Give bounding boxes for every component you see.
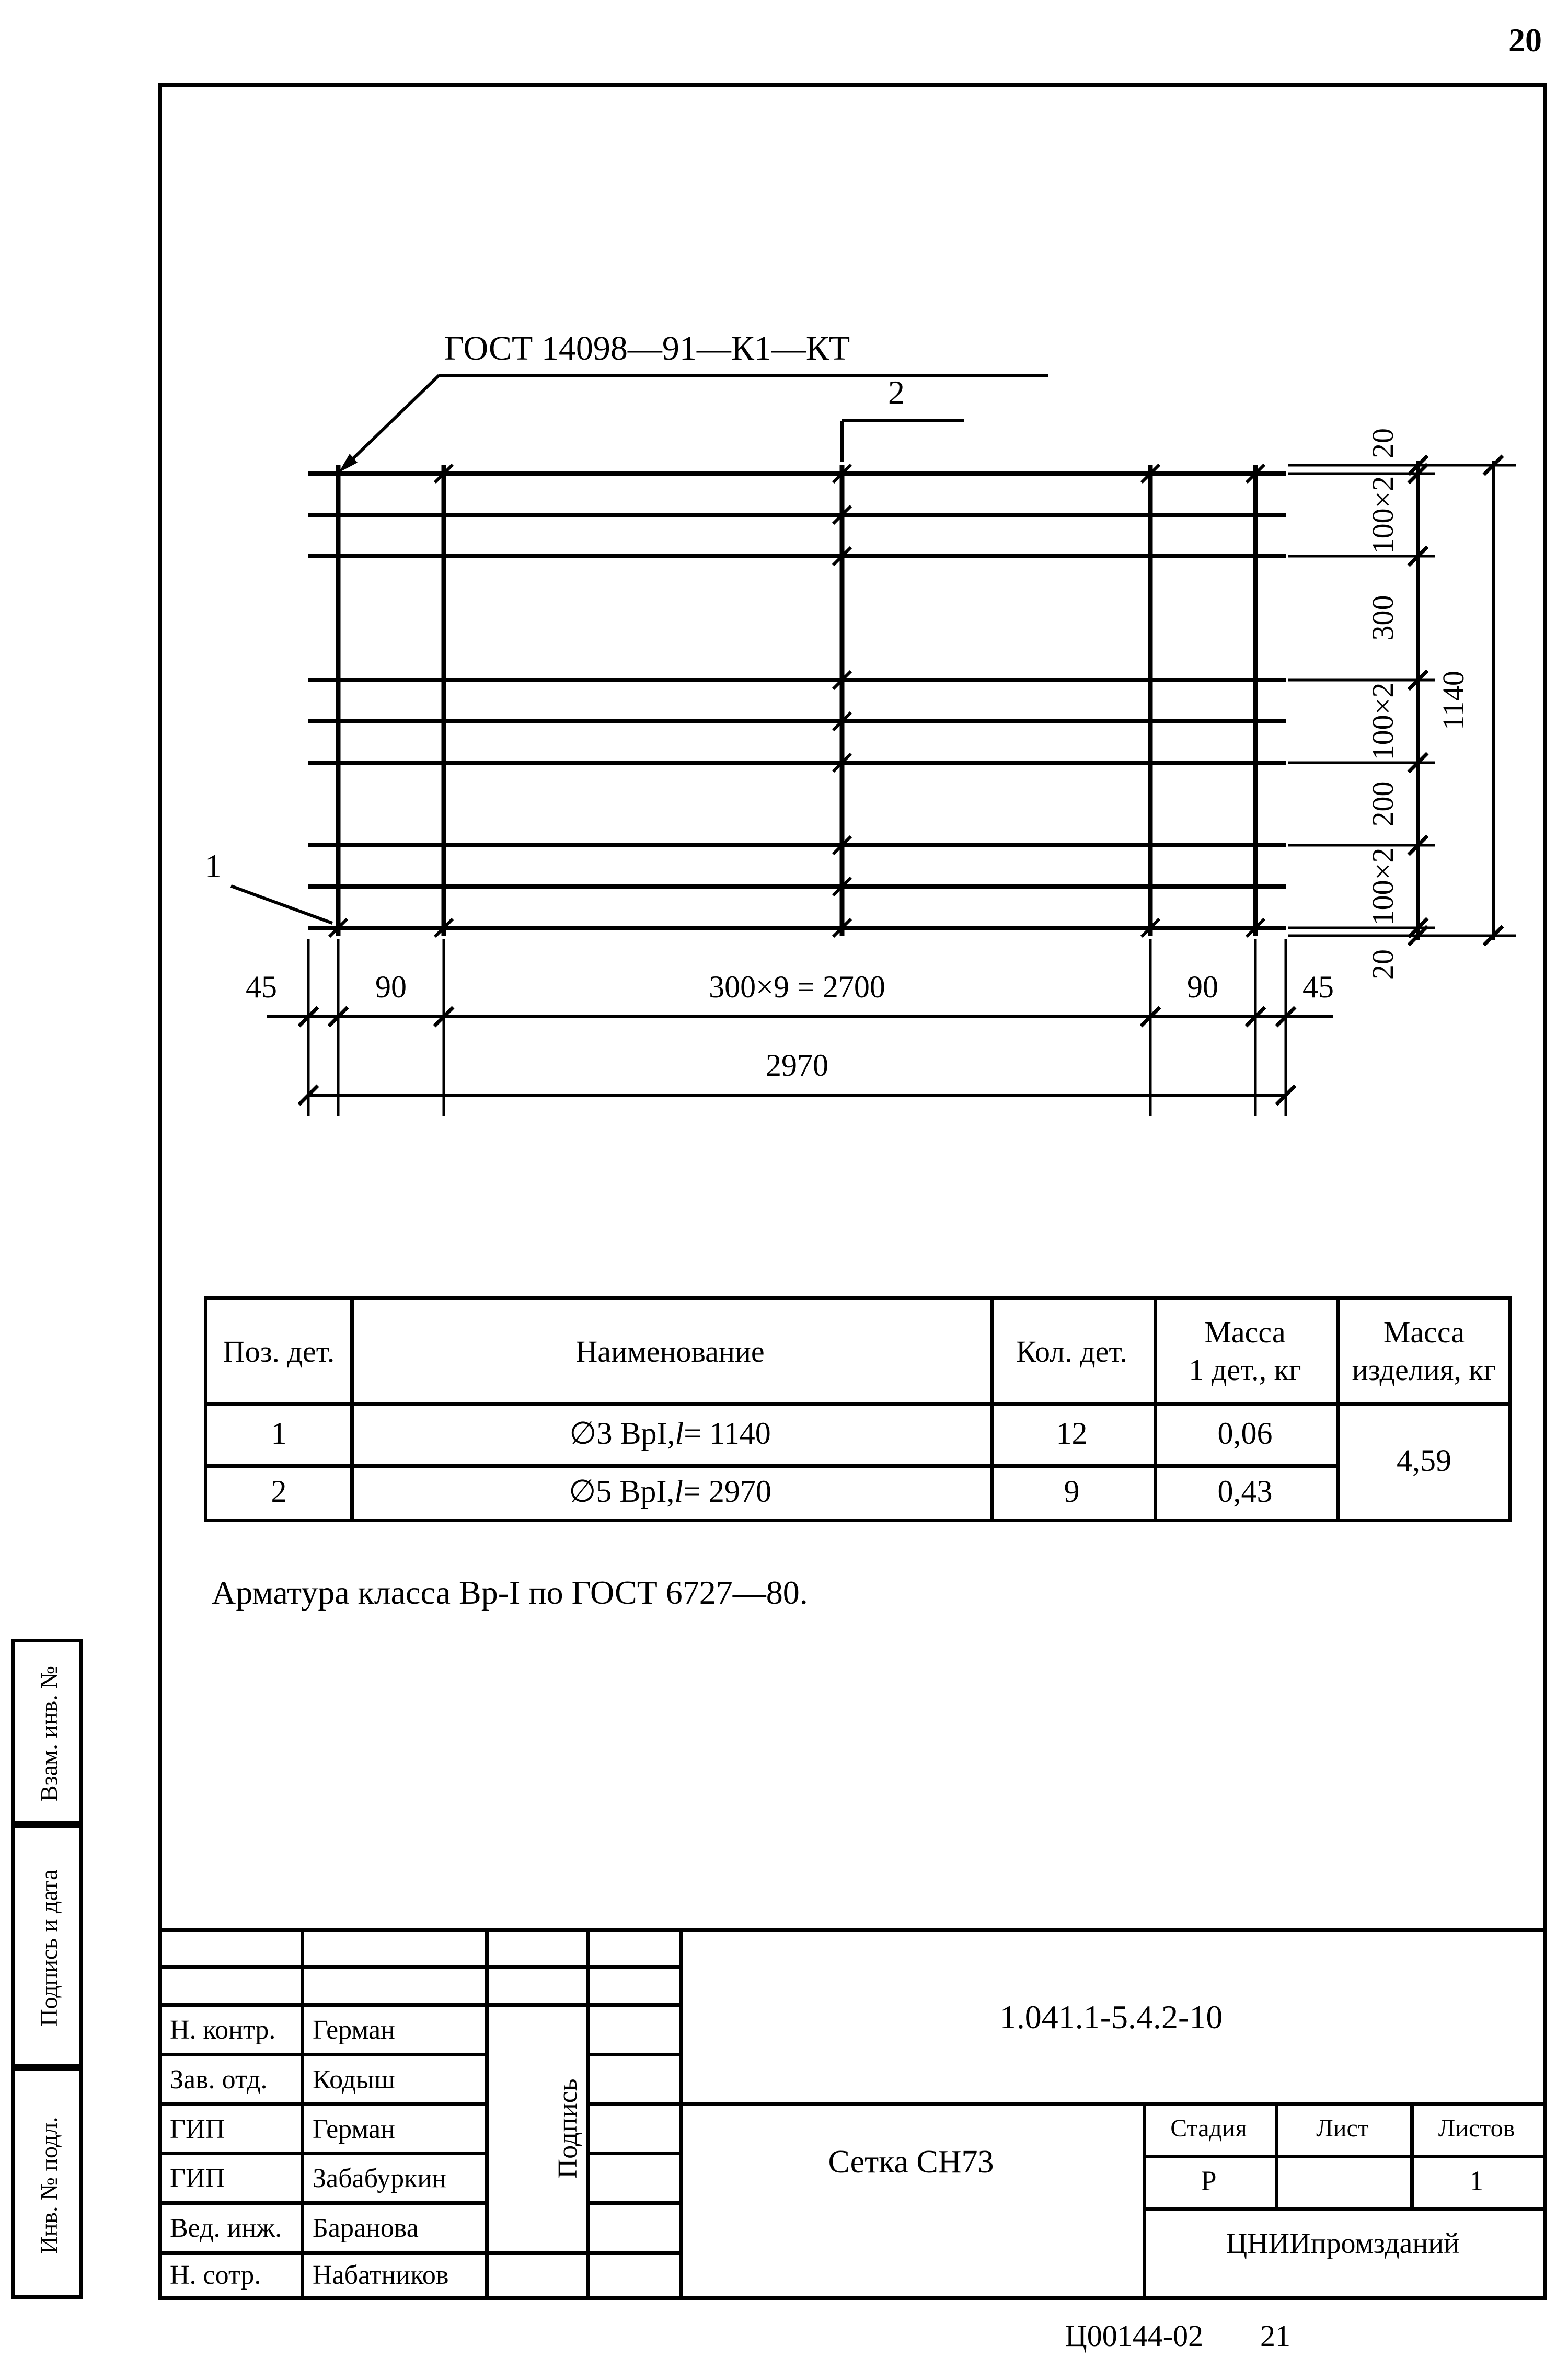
footer-page-number: 21	[1244, 2318, 1307, 2353]
dim-right-100x2-a: 100×2	[1366, 476, 1400, 554]
weld-tick-marks	[329, 465, 1264, 937]
table-row1-name: ∅3 ВрI, l = 1140	[350, 1402, 990, 1464]
stamp-sheets-header: Листов	[1410, 2102, 1543, 2155]
dim-bottom-300x9: 300×9 = 2700	[709, 970, 885, 1004]
stamp-role: ГИП	[170, 2155, 298, 2201]
dim-total-width: 2970	[766, 1048, 828, 1083]
sidebar-label-vzam: Взам. инв. №	[15, 1641, 83, 1826]
row1-name-value: = 1140	[684, 1416, 771, 1452]
stamp-sheet-header: Лист	[1275, 2102, 1410, 2155]
page-number: 20	[1458, 21, 1542, 60]
right-dimension-lines	[1288, 461, 1516, 940]
table-row1-qty: 12	[990, 1402, 1154, 1464]
dim-right-20-bottom: 20	[1366, 949, 1400, 980]
row2-name-value: = 2970	[683, 1474, 771, 1510]
sidebar-cell-podpis-data: Подпись и дата	[11, 1824, 83, 2067]
table-row2-qty: 9	[990, 1464, 1154, 1519]
sidebar-cell-vzam: Взам. инв. №	[11, 1639, 83, 1824]
footer-doc-code: Ц00144-02	[1045, 2318, 1223, 2353]
stamp-hline	[162, 1965, 679, 1969]
stamp-hline	[162, 2102, 485, 2106]
position-1-leader	[231, 886, 332, 923]
table-row2-mass: 0,43	[1154, 1464, 1336, 1519]
reinforcement-note: Арматура класса Вр-I по ГОСТ 6727—80.	[212, 1573, 1100, 1612]
row2-name-var: l	[674, 1474, 683, 1510]
table-header-qty: Кол. дет.	[990, 1300, 1154, 1402]
dim-bottom-45-right: 45	[1302, 970, 1334, 1004]
table-header-mass-unit: Масса 1 дет., кг	[1154, 1300, 1336, 1402]
spec-table: Поз. дет. Наименование Кол. дет. Масса 1…	[204, 1296, 1512, 1522]
bottom-dimension-lines	[267, 939, 1333, 1116]
stamp-role: Зав. отд.	[170, 2056, 298, 2102]
title-block: Н. контр. Герман Зав. отд. Кодыш ГИП Гер…	[158, 1928, 1547, 2300]
stamp-hline	[162, 2053, 485, 2056]
stamp-hline	[162, 2251, 679, 2255]
dim-bottom-45-left: 45	[246, 970, 277, 1004]
table-header-pos: Поз. дет.	[207, 1300, 350, 1402]
stamp-stage-value: Р	[1143, 2155, 1275, 2207]
table-header-mass-total: Масса изделия, кг	[1336, 1300, 1512, 1402]
drawing-sheet: 20 ГОСТ 14098—91—К1—КТ 2 1	[0, 0, 1568, 2358]
row2-name-prefix: ∅5 ВрI,	[569, 1473, 674, 1510]
stamp-name: Герман	[313, 2007, 482, 2053]
row1-name-var: l	[675, 1416, 684, 1452]
mesh-vertical-wires	[338, 465, 1255, 936]
stamp-role: Н. сотр.	[170, 2255, 298, 2296]
stamp-vline	[301, 1932, 304, 2296]
stamp-vline	[485, 1932, 489, 2296]
stamp-product-title: Сетка СН73	[679, 2102, 1143, 2222]
weld-standard-label: ГОСТ 14098—91—К1—КТ	[444, 329, 850, 367]
dim-right-100x2-c: 100×2	[1366, 848, 1400, 926]
stamp-role: Н. контр.	[170, 2007, 298, 2053]
table-total-mass: 4,59	[1336, 1402, 1512, 1519]
dim-bottom-90-right: 90	[1187, 970, 1218, 1004]
mesh-drawing: ГОСТ 14098—91—К1—КТ 2 1	[199, 293, 1558, 1129]
position-2-label: 2	[888, 374, 905, 411]
stamp-hline	[162, 2152, 485, 2155]
dim-right-20-top: 20	[1366, 428, 1400, 458]
mesh-horizontal-wires	[308, 474, 1286, 928]
stamp-hline	[162, 2201, 485, 2205]
table-row1-mass: 0,06	[1154, 1402, 1336, 1464]
stamp-doc-number: 1.041.1-5.4.2-10	[679, 1932, 1543, 2102]
dim-right-300: 300	[1366, 595, 1400, 641]
dim-bottom-90-left: 90	[375, 970, 407, 1004]
stamp-name: Баранова	[313, 2205, 482, 2251]
sidebar-cell-inv: Инв. № подл.	[11, 2067, 83, 2299]
stamp-name: Герман	[313, 2106, 482, 2152]
dim-total-height: 1140	[1436, 671, 1470, 730]
position-1-label: 1	[205, 847, 222, 884]
dim-right-100x2-b: 100×2	[1366, 683, 1400, 761]
stamp-name: Забабуркин	[313, 2155, 482, 2201]
dim-right-200: 200	[1366, 781, 1400, 827]
position-2-leader	[842, 421, 964, 462]
stamp-organization: ЦНИИпромзданий	[1143, 2207, 1543, 2280]
stamp-name: Кодыш	[313, 2056, 482, 2102]
sidebar-label-inv: Инв. № подл.	[15, 2069, 83, 2301]
stamp-sheets-value: 1	[1410, 2155, 1543, 2207]
table-row2-name: ∅5 ВрI, l = 2970	[350, 1464, 990, 1519]
stamp-role: Вед. инж.	[170, 2205, 298, 2251]
table-header-name: Наименование	[350, 1300, 990, 1402]
row1-name-prefix: ∅3 ВрI,	[569, 1415, 675, 1452]
stamp-signature-column-label: Подпись	[521, 2007, 615, 2250]
table-row1-pos: 1	[207, 1402, 350, 1464]
stamp-hline	[162, 2003, 679, 2007]
stamp-name: Набатников	[313, 2255, 482, 2296]
stamp-stage-header: Стадия	[1143, 2102, 1275, 2155]
table-row2-pos: 2	[207, 1464, 350, 1519]
stamp-role: ГИП	[170, 2106, 298, 2152]
sidebar-label-podpis-data: Подпись и дата	[15, 1826, 83, 2069]
